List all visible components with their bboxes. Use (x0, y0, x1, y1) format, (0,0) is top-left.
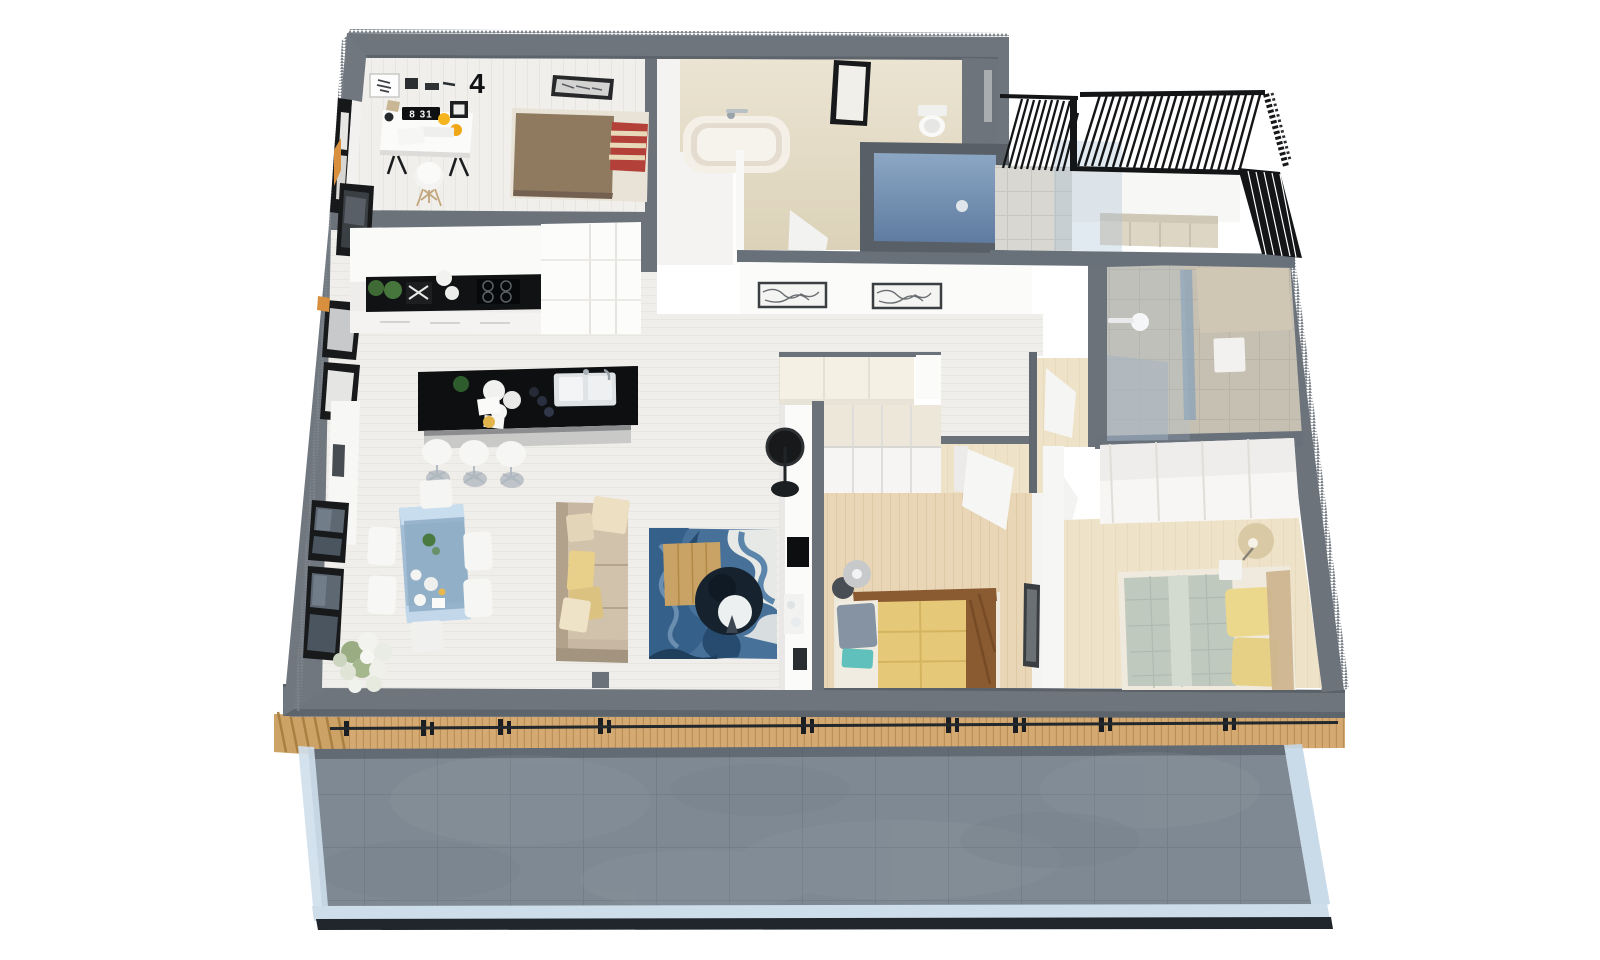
svg-text:8 31: 8 31 (409, 110, 432, 121)
svg-text:4: 4 (469, 68, 485, 99)
